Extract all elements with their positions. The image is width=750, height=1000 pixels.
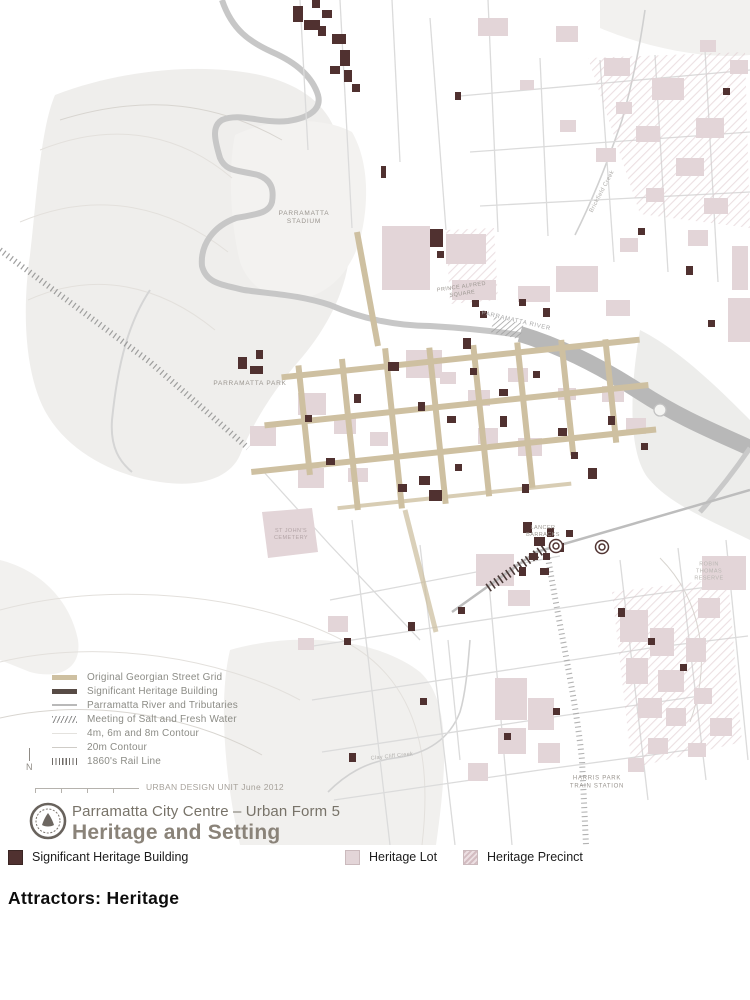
heritage-map: PARRAMATTASTADIUM PARRAMATTA PARK PARRAM… [0,0,750,845]
north-arrow: N [26,748,33,772]
council-crest-logo [28,801,68,841]
label-lancer-barracks: LANCERBARRACKS [526,525,560,539]
low-contour-swatch [52,733,77,734]
legend-item-20m-contour: 20m Contour [52,740,238,754]
legend-label: Significant Heritage Building [87,686,218,697]
map-legend: Original Georgian Street Grid Significan… [52,670,238,768]
legend-label: Meeting of Salt and Fresh Water [87,714,237,725]
legend-label: 20m Contour [87,742,147,753]
bottom-legend: Significant Heritage Building Heritage L… [0,846,750,868]
legend-item-rail-line: 1860's Rail Line [52,754,238,768]
legend-label: 1860's Rail Line [87,756,161,767]
contour-20m-swatch [52,747,77,748]
label-parramatta-stadium: PARRAMATTASTADIUM [279,210,330,226]
map-series-title: Parramatta City Centre – Urban Form 5 [72,803,340,820]
map-sheet-title: Heritage and Setting [72,821,340,845]
heritage-building-square-swatch [8,850,23,865]
heritage-building-swatch [52,689,77,694]
legend-item-salt-fresh-water: Meeting of Salt and Fresh Water [52,712,238,726]
page-caption: Attractors: Heritage [8,888,179,909]
rail-line-swatch [52,758,77,765]
bottom-legend-item-heritage-building: Significant Heritage Building [8,846,188,868]
document-page: PARRAMATTASTADIUM PARRAMATTA PARK PARRAM… [0,0,750,1000]
map-title-block: Parramatta City Centre – Urban Form 5 He… [72,803,340,845]
label-robin-thomas-reserve: ROBIN THOMAS RESERVE [694,562,723,583]
legend-item-heritage-building: Significant Heritage Building [52,684,238,698]
label-harris-park-station: HARRIS PARKTRAIN STATION [570,776,624,791]
station-symbols [550,540,609,554]
heritage-lot-square-swatch [345,850,360,865]
heritage-precinct-square-swatch [463,850,478,865]
legend-item-low-contour: 4m, 6m and 8m Contour [52,726,238,740]
label-parramatta-park: PARRAMATTA PARK [213,380,286,388]
legend-label: Original Georgian Street Grid [87,672,222,683]
bottom-legend-label: Significant Heritage Building [32,850,188,864]
label-st-johns-cemetery: ST JOHN'SCEMETERY [274,528,308,542]
street-grid-swatch [52,675,77,680]
bottom-legend-item-heritage-lot: Heritage Lot [345,846,437,868]
river-line-swatch [52,704,77,706]
bottom-legend-label: Heritage Lot [369,850,437,864]
north-label: N [26,762,33,772]
legend-item-street-grid: Original Georgian Street Grid [52,670,238,684]
legend-label: 4m, 6m and 8m Contour [87,728,199,739]
north-arrow-stem [29,748,30,761]
bottom-legend-label: Heritage Precinct [487,850,583,864]
bottom-legend-item-heritage-precinct: Heritage Precinct [463,846,583,868]
legend-label: Parramatta River and Tributaries [87,700,238,711]
credit-text: URBAN DESIGN UNIT June 2012 [146,782,284,792]
scale-bar [35,788,139,793]
salt-fresh-hatch-swatch [52,716,77,723]
legend-item-river: Parramatta River and Tributaries [52,698,238,712]
